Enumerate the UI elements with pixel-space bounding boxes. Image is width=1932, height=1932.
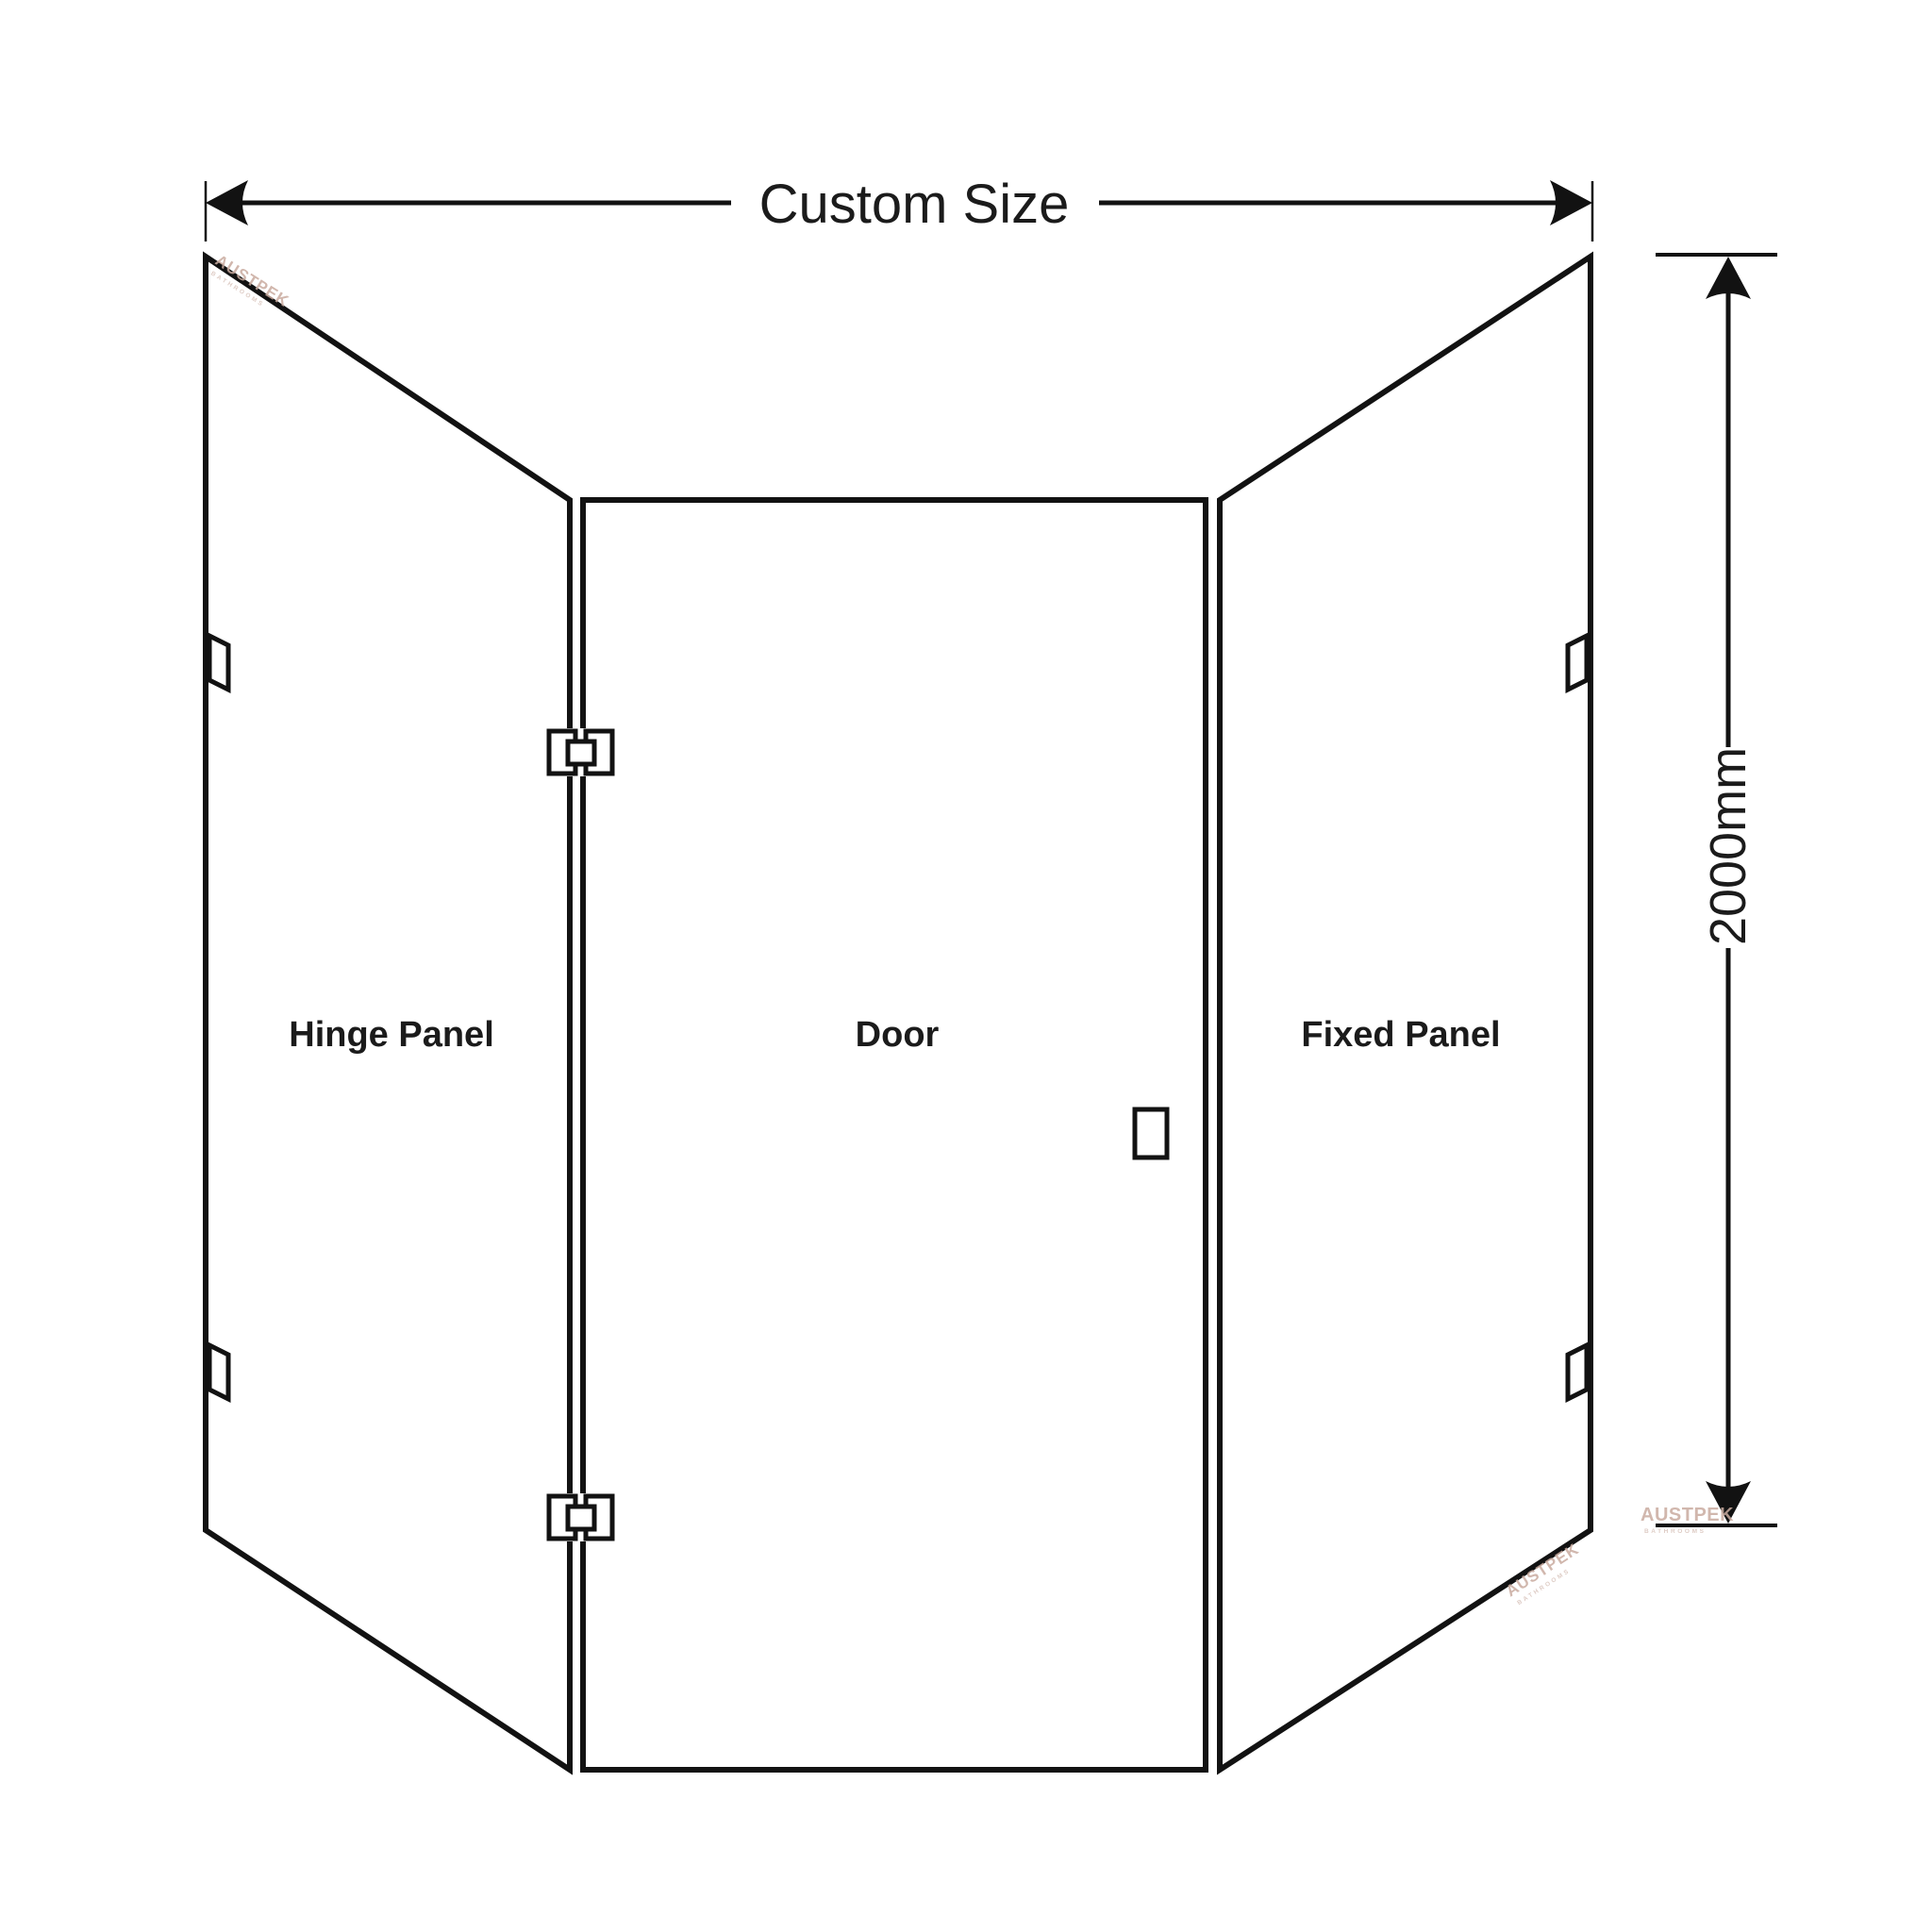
shower-screen-diagram: Custom Size 2000mm [0, 0, 1932, 1932]
height-dimension-label: 2000mm [1700, 747, 1757, 945]
arrow-left-icon [206, 180, 248, 225]
fixed-panel-outline [1220, 257, 1591, 1770]
watermark-bottom-dimension: AUSTPEK BATHROOMS [1641, 1505, 1734, 1535]
hinge-pin-block [568, 1507, 594, 1529]
hinge-panel-label: Hinge Panel [289, 1015, 494, 1055]
arrow-up-icon [1706, 257, 1751, 299]
wall-bracket-bottom-left-icon [209, 1345, 228, 1399]
width-dimension-label: Custom Size [759, 174, 1070, 235]
watermark-brand: AUSTPEK [1641, 1505, 1734, 1525]
hinge-panel-outline [206, 257, 570, 1770]
watermark-bottom-right-diagonal: AUSTPEK BATHROOMS [1503, 1540, 1588, 1607]
wall-bracket-top-right-icon [1568, 636, 1587, 690]
door-handle-icon [1135, 1109, 1167, 1158]
door-label: Door [856, 1015, 940, 1055]
width-dimension: Custom Size [206, 174, 1592, 241]
door-hinge-bottom-icon [546, 1493, 615, 1541]
fixed-panel-label: Fixed Panel [1301, 1015, 1500, 1055]
door-outline [583, 500, 1206, 1770]
arrow-right-icon [1550, 180, 1592, 225]
height-dimension: 2000mm [1656, 255, 1777, 1525]
door-hinge-top-icon [546, 728, 615, 776]
watermark-top-left: AUSTPEK BATHROOMS [208, 251, 292, 318]
hinge-pin-block [568, 741, 594, 764]
wall-bracket-bottom-right-icon [1568, 1345, 1587, 1399]
wall-bracket-top-left-icon [209, 636, 228, 690]
watermark-sub: BATHROOMS [1644, 1528, 1707, 1535]
diagram-canvas: Custom Size 2000mm [0, 0, 1932, 1932]
